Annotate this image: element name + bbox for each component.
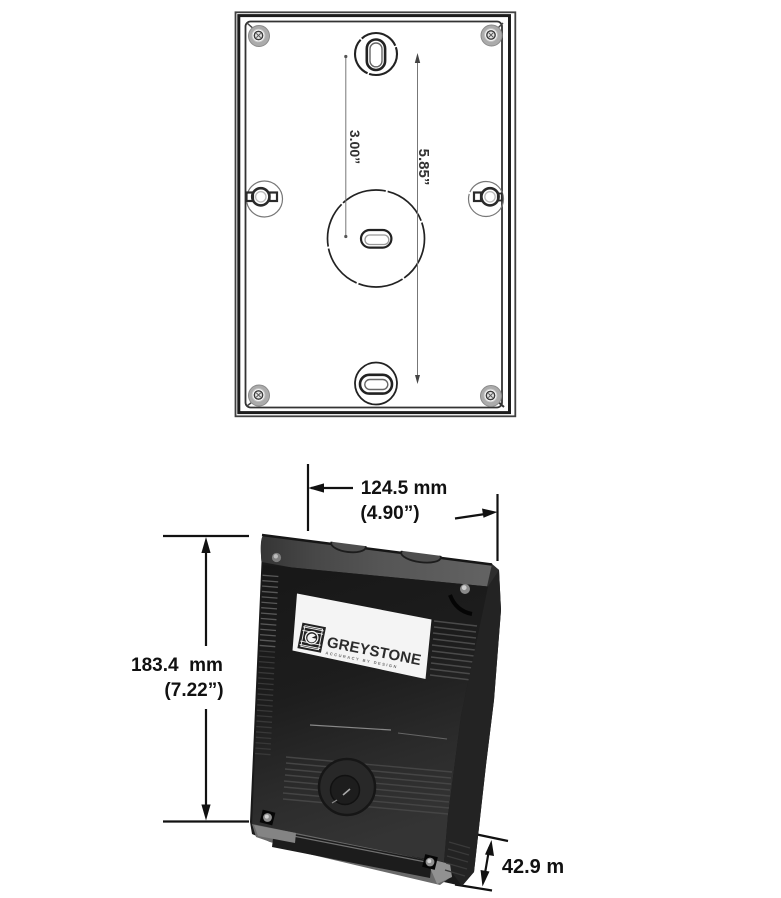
svg-text:183.4 mm: 183.4 mm	[131, 655, 223, 676]
svg-text:(7.22”): (7.22”)	[164, 680, 223, 701]
svg-text:5.85”: 5.85”	[415, 149, 432, 186]
svg-text:(4.90”): (4.90”)	[360, 503, 419, 524]
svg-text:124.5 mm: 124.5 mm	[361, 478, 448, 499]
svg-text:3.00”: 3.00”	[347, 130, 363, 164]
svg-text:42.9 m: 42.9 m	[502, 856, 564, 878]
